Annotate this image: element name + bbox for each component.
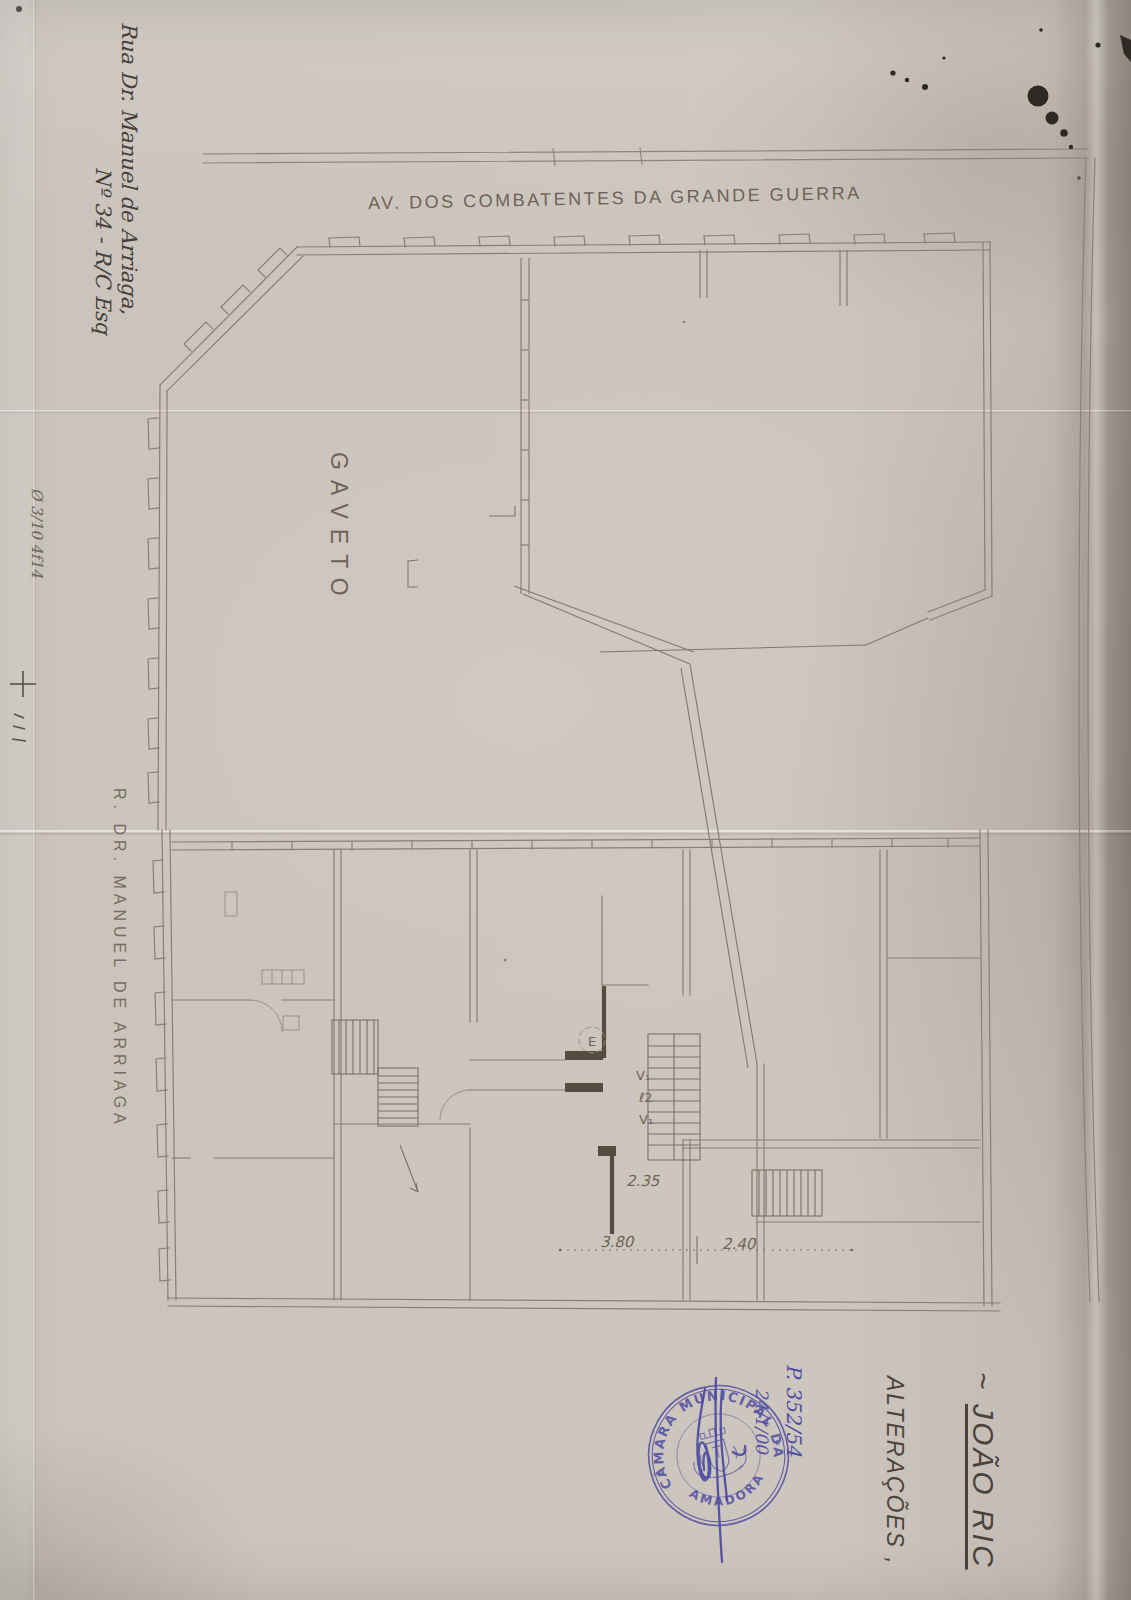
floor-plan-drawing: E V₁ ℓ2 V₁ 2.35 3.80 2.40 [0, 0, 1131, 1600]
left-street-label: R. DR. MANUEL DE ARRIAGA [110, 788, 128, 1129]
project-title-label: ~ JOÃO RIC [966, 1372, 1000, 1570]
gaveto-corner-label: GAVETO [325, 452, 352, 606]
dimension-2-35: 2.35 [626, 1172, 661, 1190]
paper-edge-mark [1120, 35, 1131, 62]
margin-pencil-marks [10, 671, 36, 741]
alteracoes-label: ALTERAÇÕES , [881, 1376, 908, 1566]
margin-pencil-note: Ø 3/10 4f14 [28, 488, 46, 578]
dimension-3-80: 3.80 [600, 1233, 635, 1251]
elevator-label: E [588, 1034, 596, 1049]
duct-label: ℓ2 [638, 1090, 653, 1105]
handwritten-address: Rua Dr. Manuel de Arriaga, Nº 34 - R/C E… [90, 22, 142, 402]
vent-label-2: V₁ [639, 1112, 653, 1127]
vent-label-1: V₁ [636, 1068, 650, 1083]
address-line-2: Nº 34 - R/C Esq [90, 167, 116, 402]
apartment-walls [172, 838, 980, 1300]
street-border-lines [203, 148, 1099, 1302]
title-tilde-mark: ~ [967, 1372, 1000, 1393]
stamp-coat-of-arms [686, 1422, 750, 1482]
stairs-and-core [225, 892, 822, 1234]
address-line-1: Rua Dr. Manuel de Arriaga, [116, 22, 142, 402]
courtyard-lines [408, 250, 928, 1068]
dimension-2-40: 2.40 [722, 1235, 757, 1253]
title-name: JOÃO RIC [967, 1404, 1000, 1570]
building-outline [148, 233, 1000, 1311]
